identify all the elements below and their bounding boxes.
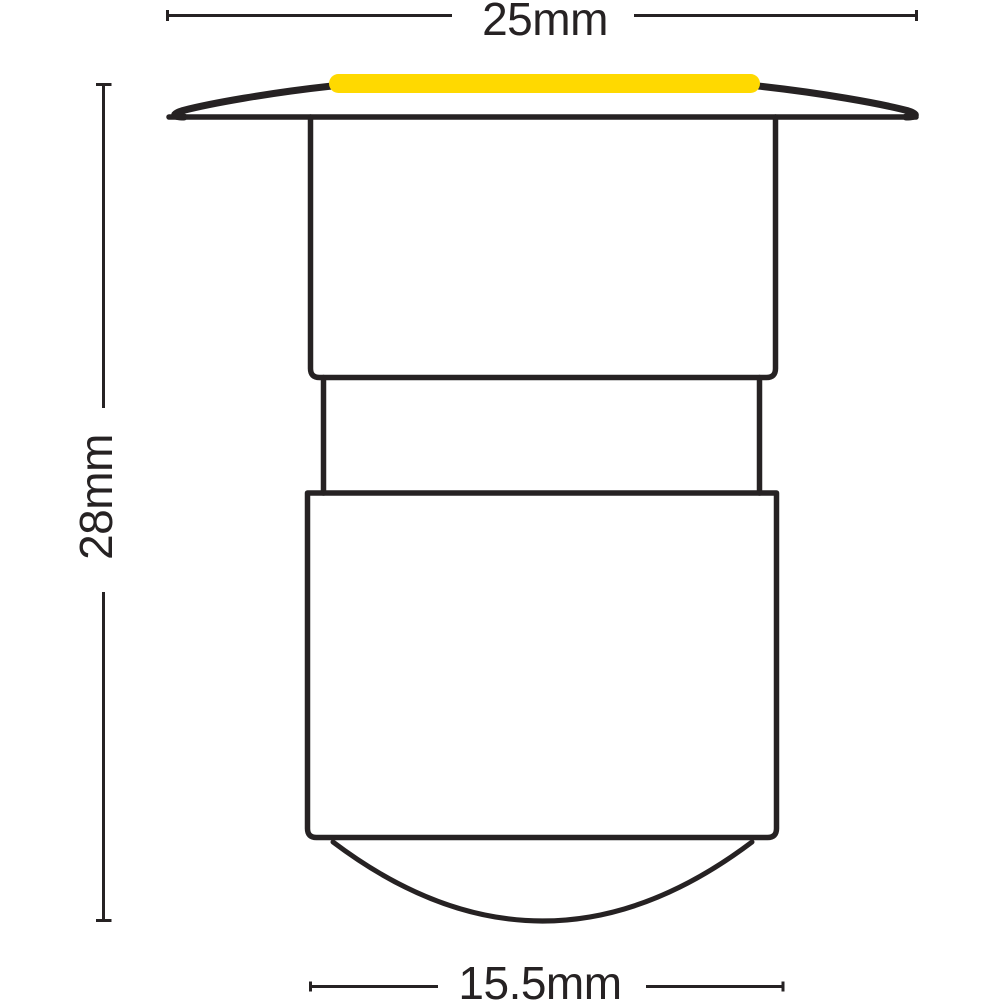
lower-body-outline bbox=[308, 493, 777, 838]
led-strip bbox=[329, 74, 760, 93]
upper-body-outline bbox=[311, 117, 776, 378]
dimension-left-height: 28mm bbox=[70, 85, 122, 921]
flange-top-left-curve bbox=[175, 86, 332, 117]
dimension-bottom-width: 15.5mm bbox=[311, 957, 784, 1000]
diagram-canvas: 25mm 28mm 15.5mm bbox=[0, 0, 1000, 1000]
dimension-top-width: 25mm bbox=[168, 0, 917, 45]
dimension-label-bottom-width: 15.5mm bbox=[458, 957, 621, 1000]
dimension-label-top-width: 25mm bbox=[482, 0, 608, 45]
fixture-drawing bbox=[169, 74, 916, 921]
diffuser-dome-arc bbox=[333, 842, 752, 921]
fixture-dimension-diagram: 25mm 28mm 15.5mm bbox=[0, 0, 1000, 1000]
flange-top-right-curve bbox=[758, 86, 915, 117]
dimension-label-left-height: 28mm bbox=[70, 434, 122, 560]
